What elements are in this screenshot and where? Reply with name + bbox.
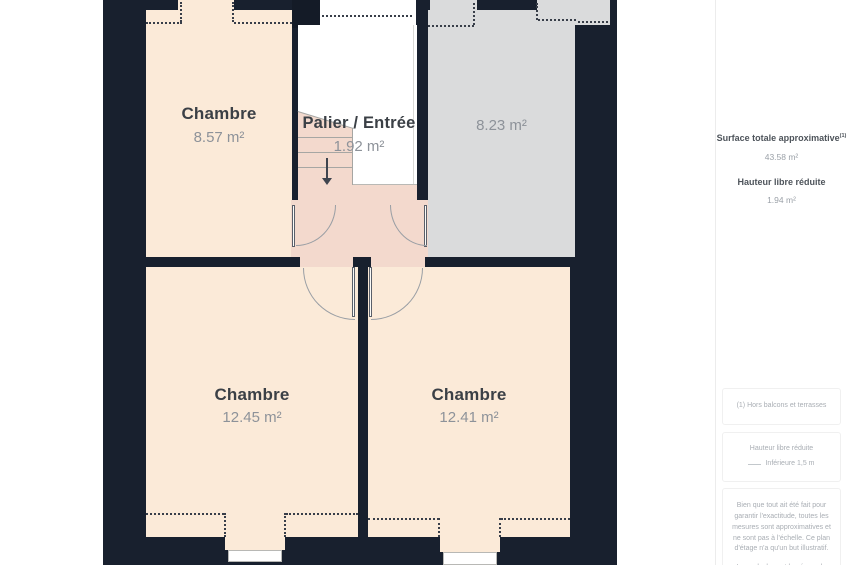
stairs-down-arrow-icon: [326, 158, 328, 180]
room-area-label: 8.23 m²: [428, 117, 575, 134]
disclaimer-text: Bien que tout ait été fait pour garantir…: [730, 501, 833, 555]
dashed-line: [438, 518, 440, 537]
dormer-top-left: [178, 0, 234, 10]
room-name-label: Chambre: [146, 385, 358, 405]
room-area-label: 12.45 m²: [146, 409, 358, 426]
disclaimer-box: Bien que tout ait été fait pour garantir…: [722, 488, 841, 565]
surface-total-value: 43.58 m²: [715, 152, 848, 162]
room-area-label: 8.57 m²: [146, 129, 292, 146]
door-leaf: [292, 205, 295, 247]
surface-total-title-text: Surface totale approximative: [717, 133, 840, 143]
landing-edge-line: [353, 184, 417, 185]
reduced-height-line-swatch-icon: [748, 464, 761, 465]
dashed-line: [501, 518, 570, 520]
room-name-label: Chambre: [146, 104, 292, 124]
door-opening-bottom-right: [371, 257, 425, 267]
room-area-label: 12.41 m²: [368, 409, 570, 426]
legend-item-text: Inférieure 1,5 m: [765, 459, 814, 470]
stair-side-line: [352, 128, 353, 185]
footnote-marker: (1): [840, 133, 847, 139]
dashed-line: [146, 513, 224, 515]
room-name-label: Chambre: [368, 385, 570, 405]
legend-title: Hauteur libre réduite: [750, 444, 813, 455]
door-opening-bottom-left: [300, 257, 353, 267]
legend-row: Inférieure 1,5 m: [748, 459, 814, 470]
dashed-line: [538, 19, 576, 21]
dashed-line: [232, 2, 234, 22]
dashed-line: [180, 2, 182, 22]
dashed-line: [284, 513, 286, 537]
window-bottom-left: [228, 550, 282, 562]
room-name-label: Palier / Entrée: [293, 114, 425, 133]
footnote-box: (1) Hors balcons et terrasses: [722, 388, 841, 425]
reduced-height-value: 1.94 m²: [715, 195, 848, 205]
dashed-line: [473, 3, 475, 25]
wall-face-line: [413, 25, 414, 185]
reduced-height-title: Hauteur libre réduite: [715, 177, 848, 187]
window-bottom-right: [443, 552, 497, 565]
surface-total-title: Surface totale approximative(1): [715, 133, 848, 143]
dormer-bottom-right: [440, 537, 500, 552]
stairs-down-arrowhead-icon: [322, 178, 332, 185]
dashed-line: [368, 518, 439, 520]
dashed-line: [322, 15, 412, 17]
dashed-line: [234, 22, 292, 24]
dashed-line: [146, 22, 182, 24]
dashed-line: [224, 513, 226, 537]
dormer-bottom-left: [225, 537, 285, 550]
floorplan-page: Chambre 8.57 m² Palier / Entrée 1.92 m² …: [0, 0, 848, 565]
dashed-line: [286, 513, 358, 515]
wall-stub-top: [292, 0, 320, 28]
dashed-line: [578, 21, 608, 23]
dashed-line: [536, 3, 538, 20]
footnote-text: (1) Hors balcons et terrasses: [737, 401, 827, 412]
dashed-line: [428, 25, 474, 27]
legend-box: Hauteur libre réduite Inférieure 1,5 m: [722, 432, 841, 482]
dormer-top-right-1: [430, 0, 477, 10]
dashed-line: [499, 518, 501, 537]
room-area-label: 1.92 m²: [293, 138, 425, 155]
stairwell-top-opening: [320, 0, 416, 25]
